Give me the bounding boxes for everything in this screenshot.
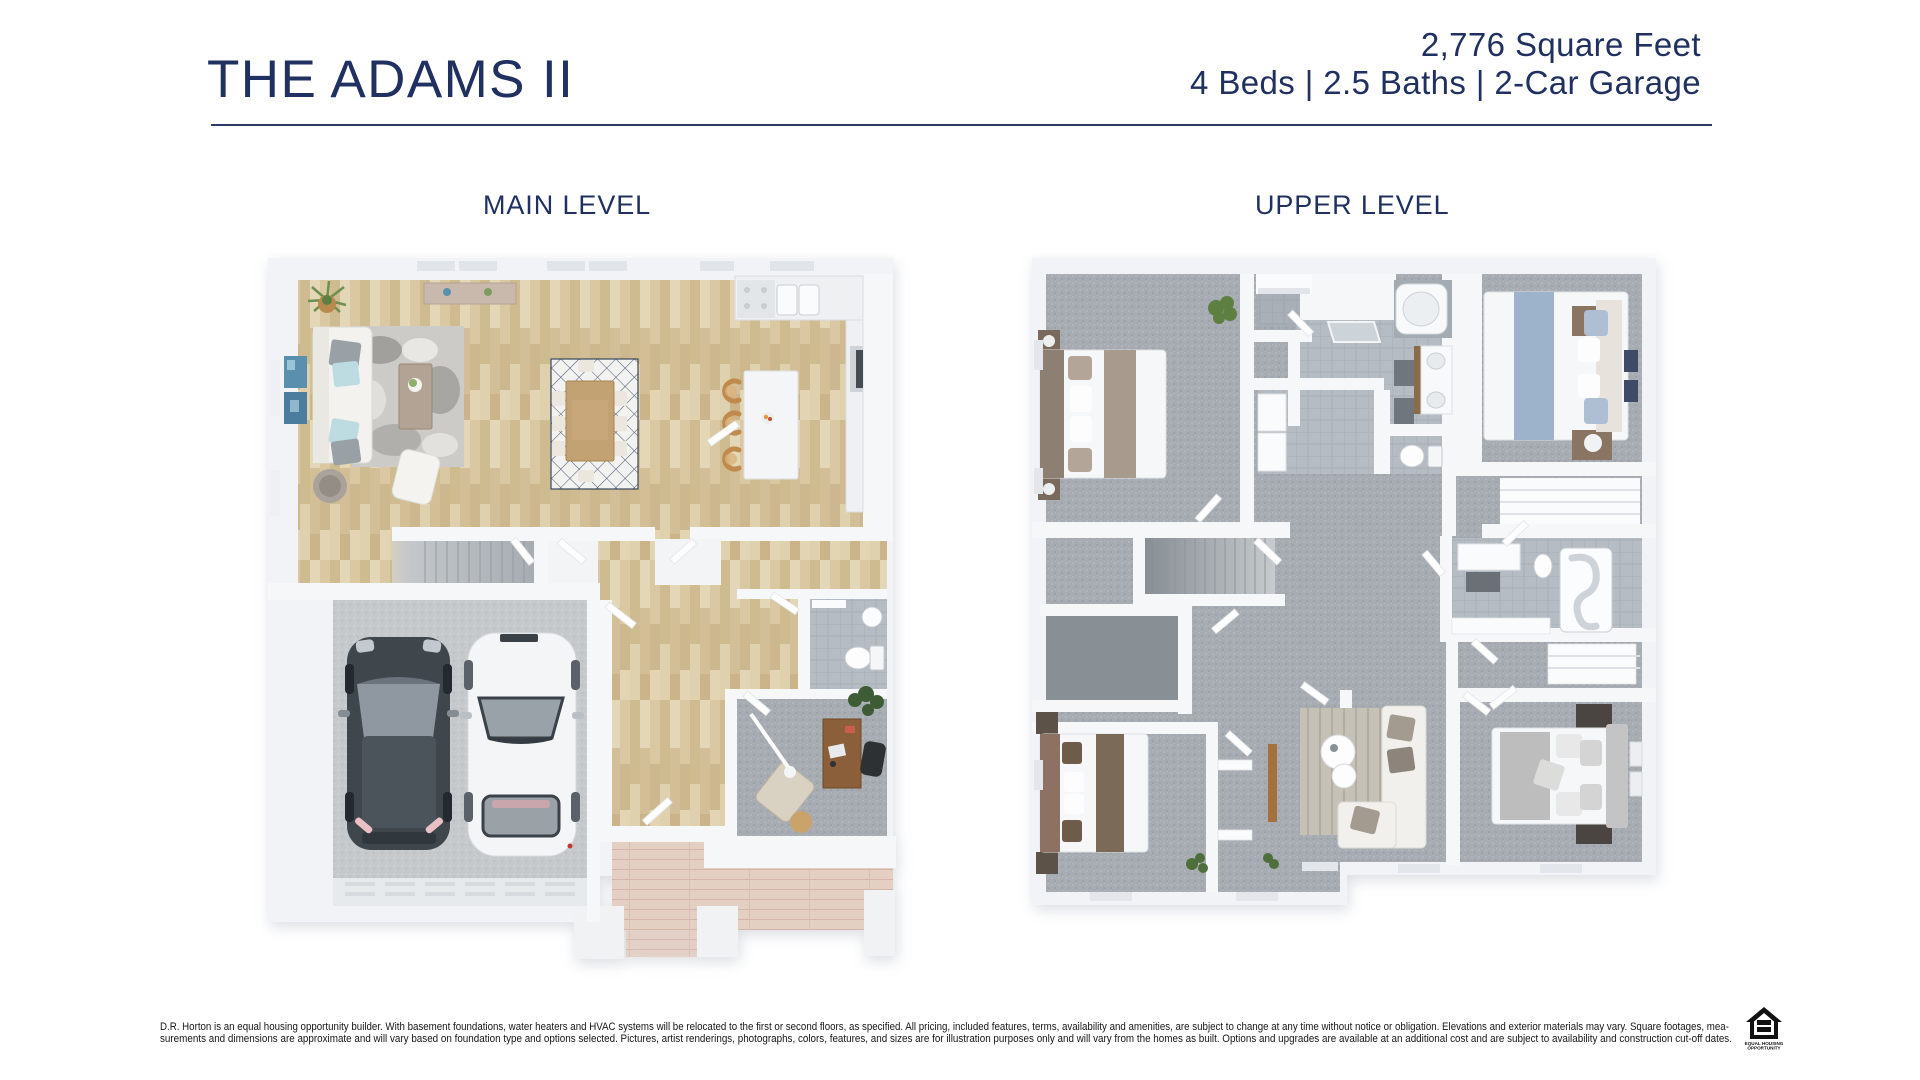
svg-text:OPPORTUNITY: OPPORTUNITY — [1747, 1046, 1780, 1051]
